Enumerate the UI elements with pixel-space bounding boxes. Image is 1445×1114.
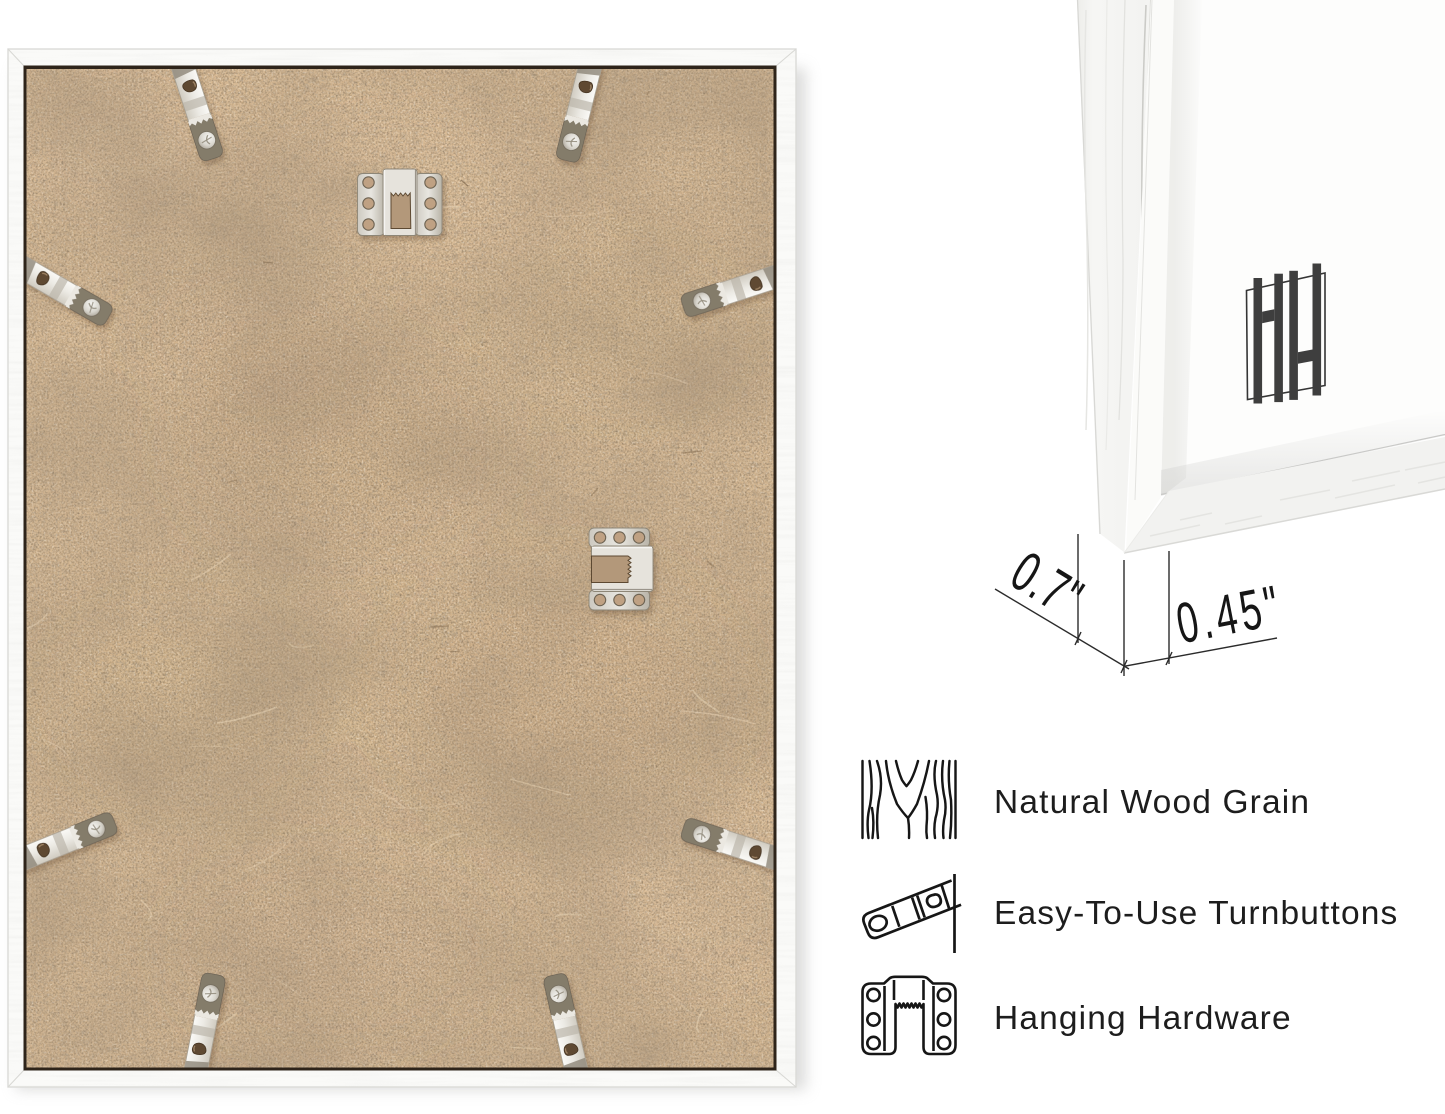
svg-text:0.7": 0.7" xyxy=(1000,540,1094,631)
svg-text:0.45": 0.45" xyxy=(1171,573,1288,656)
svg-text:Natural Wood Grain: Natural Wood Grain xyxy=(994,784,1310,821)
svg-text:Hanging Hardware: Hanging Hardware xyxy=(994,1000,1292,1037)
svg-text:Easy-To-Use Turnbuttons: Easy-To-Use Turnbuttons xyxy=(994,895,1398,932)
